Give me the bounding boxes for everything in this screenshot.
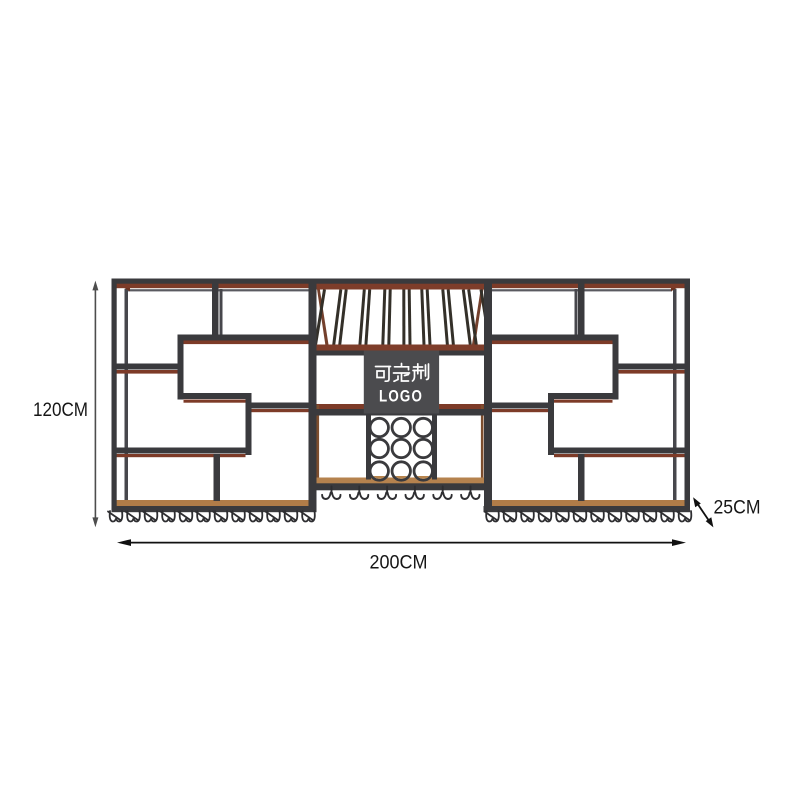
svg-text:120CM: 120CM (33, 400, 88, 421)
svg-text:LOGO: LOGO (379, 387, 423, 406)
svg-text:25CM: 25CM (714, 498, 761, 519)
svg-text:200CM: 200CM (370, 552, 428, 574)
